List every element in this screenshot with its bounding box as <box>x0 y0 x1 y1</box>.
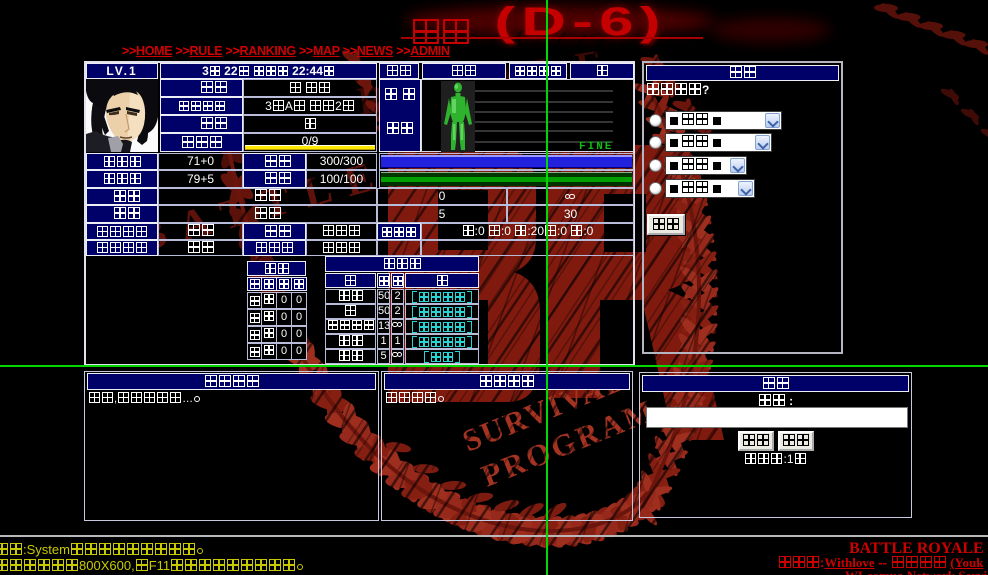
svg-text:FINE: FINE <box>579 141 613 153</box>
